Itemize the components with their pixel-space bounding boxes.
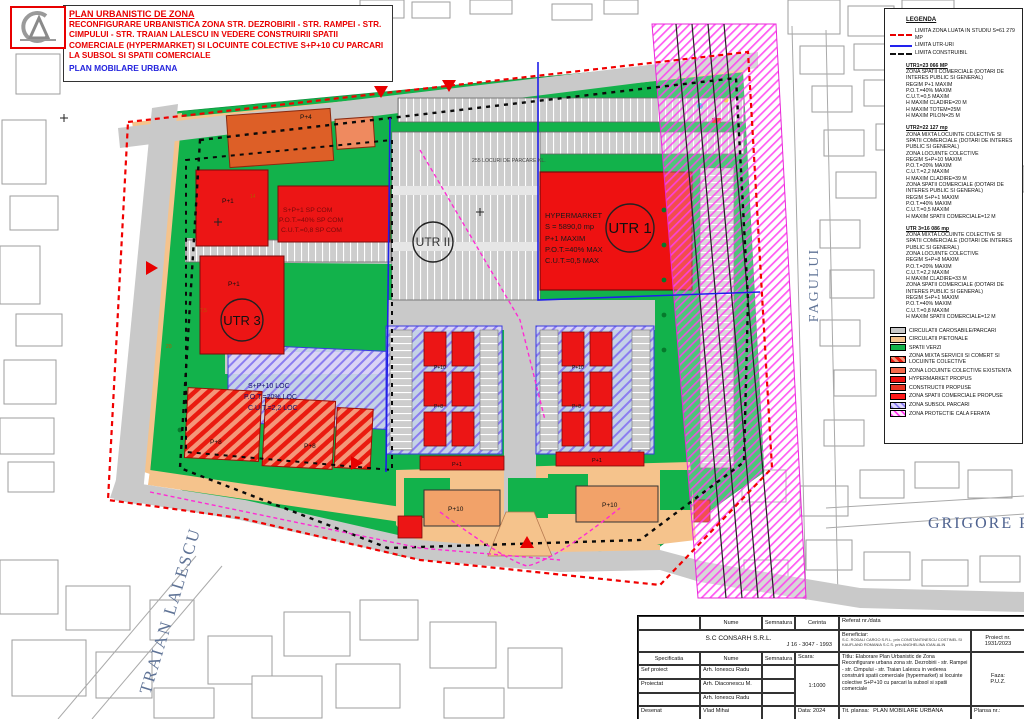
tb-beneficiar-cell: Beneficiar: S.C. RODALI CARGO S.R.L. pri… xyxy=(839,630,971,652)
faza-value: P.U.Z. xyxy=(990,679,1005,685)
tb-role-desenat: Desenat xyxy=(638,706,700,719)
beneficiar-value: S.C. RODALI CARGO S.R.L. prin CONSTANTIN… xyxy=(842,638,968,647)
tb-referat-header: Referat nr./data xyxy=(839,616,1024,630)
tb-blank-cell xyxy=(638,616,700,630)
red-dashed-line-icon xyxy=(890,34,912,36)
utr1-badge-label: UTR 1 xyxy=(608,220,651,237)
svg-text:C.U.T.=0,8 SP COM: C.U.T.=0,8 SP COM xyxy=(281,227,342,234)
svg-text:P+8: P+8 xyxy=(572,404,581,410)
proposed-buildings-swatch xyxy=(890,384,906,391)
proiect-value: 1931/2023 xyxy=(985,641,1011,647)
legend-limit-study: LIMITA ZONA LUATA IN STUDIU S=61 279 MP xyxy=(890,28,1019,41)
legend-utr1-block: UTR1=23 066 MP ZONA SPATII COMERCIALE (D… xyxy=(906,63,1018,120)
tb-plansa-title-cell: Tit. plansa: PLAN MOBILARE URBANA xyxy=(839,706,971,719)
svg-text:P+10: P+10 xyxy=(448,506,464,513)
plan-sheet-name: PLAN MOBILARE URBANA xyxy=(69,63,387,73)
tb-semnatura-header-2: Semnatura xyxy=(762,652,795,665)
railway-protection-swatch xyxy=(890,410,906,417)
building-utr3-a xyxy=(196,170,268,246)
parking-count-label: 255 LOCURI DE PARCARE KL. xyxy=(472,158,546,164)
svg-text:P+10: P+10 xyxy=(602,502,618,509)
legend-color-items: CIRCULATII CAROSABILE/PARCARI CIRCULATII… xyxy=(890,327,1019,417)
tb-sig-2 xyxy=(762,679,795,693)
svg-text:P+4: P+4 xyxy=(300,114,312,121)
tb-plansa-nr-label: Plansa nr.: xyxy=(971,706,1024,719)
plansa-title-value: PLAN MOBILARE URBANA xyxy=(873,708,943,714)
hypermarket-swatch xyxy=(890,376,906,383)
svg-text:S+P+10 LOC: S+P+10 LOC xyxy=(248,383,290,390)
tb-role-sef-proiect: Sef proiect xyxy=(638,665,700,679)
loc-label: S+P+10 LOC P.O.T.=20% LOC C.U.T.=2,2 LOC xyxy=(244,383,298,412)
logo-glyph xyxy=(12,8,64,47)
pedestrian-swatch xyxy=(890,336,906,343)
svg-text:P+10: P+10 xyxy=(434,365,446,371)
legend-utr3-block: UTR 3=16 086 mp ZONA MIXTA LOCUINTE COLE… xyxy=(906,226,1018,320)
svg-text:P+8: P+8 xyxy=(434,404,443,410)
tb-name-desenat: Vlad Mihai xyxy=(700,706,762,719)
svg-text:P+10: P+10 xyxy=(572,365,584,371)
svg-text:HYPERMARKET: HYPERMARKET xyxy=(545,211,603,220)
plan-map: UTR 1 UTR II UTR 3 HYPERMARKET S = 5890,… xyxy=(0,0,1024,719)
street-grigore: GRIGORE P xyxy=(928,515,1024,532)
green-space-swatch xyxy=(890,344,906,351)
svg-text:S+P+1 SP COM: S+P+1 SP COM xyxy=(283,207,333,214)
tb-role-blank xyxy=(638,693,700,706)
roads-swatch xyxy=(890,327,906,334)
company-name: S.C CONSARH S.R.L. xyxy=(706,635,772,642)
tb-sig-4 xyxy=(762,706,795,719)
tb-titlu-cell: Titlu: Elaborare Plan Urbanistic de Zona… xyxy=(839,652,971,706)
company-logo xyxy=(10,6,66,49)
street-fagului: FAGULUI xyxy=(807,248,822,322)
svg-text:C.U.T.=0,5 MAX: C.U.T.=0,5 MAX xyxy=(545,256,599,265)
legend-limit-buildable: LIMITA CONSTRUIBIL xyxy=(890,50,1019,56)
tb-role-proiectat: Proiectat xyxy=(638,679,700,693)
tb-company-cell: S.C CONSARH S.R.L. J 16 - 3047 - 1993 xyxy=(638,630,839,652)
svg-text:C.U.T.=2,2 LOC: C.U.T.=2,2 LOC xyxy=(248,405,298,412)
plansa-title-label: Tit. plansa: xyxy=(842,708,869,714)
tb-proiect-cell: Proiect nr. 1931/2023 xyxy=(971,630,1024,652)
company-registration: J 16 - 3047 - 1993 xyxy=(787,642,838,648)
blue-line-icon xyxy=(890,45,912,47)
proposed-commercial-swatch xyxy=(890,393,906,400)
svg-text:P+1 MAXIM: P+1 MAXIM xyxy=(545,234,585,243)
tb-name-proiectat: Arh. Diaconescu M. xyxy=(700,679,762,693)
tb-sig-1 xyxy=(762,665,795,679)
svg-text:20: 20 xyxy=(166,344,172,350)
svg-text:7,5: 7,5 xyxy=(200,308,207,314)
svg-text:P.O.T.=40% SP COM: P.O.T.=40% SP COM xyxy=(279,217,343,224)
tb-specificatia-header: Specificatia xyxy=(638,652,700,665)
titlu-value: Elaborare Plan Urbanistic de Zona Reconf… xyxy=(842,654,967,692)
utr2-badge-label: UTR II xyxy=(416,235,451,249)
svg-text:P+1: P+1 xyxy=(228,281,240,288)
svg-text:P+8: P+8 xyxy=(210,439,222,446)
tb-name-extra: Arh. Ionescu Radu xyxy=(700,693,762,706)
underground-parking-swatch xyxy=(890,402,906,409)
svg-text:P.O.T.=20% LOC: P.O.T.=20% LOC xyxy=(244,394,297,401)
tb-scara-label: Scara: xyxy=(795,652,839,665)
tb-semnatura-header: Semnatura xyxy=(762,616,795,630)
tb-sig-3 xyxy=(762,693,795,706)
urban-plan-sheet: UTR 1 UTR II UTR 3 HYPERMARKET S = 5890,… xyxy=(0,0,1024,719)
tb-name-sef-proiect: Arh. Ionescu Radu xyxy=(700,665,762,679)
legend-limit-utr: LIMITA UTR-URI xyxy=(890,42,1019,48)
tb-cerinta-header: Cerinta xyxy=(795,616,839,630)
svg-text:P+1: P+1 xyxy=(452,462,462,468)
building-utr3-c xyxy=(200,256,284,354)
tb-nume-header-2: Nume xyxy=(700,652,762,665)
titlu-label: Titlu: xyxy=(842,654,854,660)
legend-title: LEGENDA xyxy=(906,17,1019,23)
plan-title-box: PLAN URBANISTIC DE ZONA RECONFIGURARE UR… xyxy=(63,5,393,82)
svg-text:P.O.T.=40% MAX: P.O.T.=40% MAX xyxy=(545,245,603,254)
title-block: Nume Semnatura Cerinta Referat nr./data … xyxy=(637,615,1024,719)
svg-text:P+8: P+8 xyxy=(304,443,316,450)
svg-text:P+1: P+1 xyxy=(592,458,602,464)
utr3-badge-label: UTR 3 xyxy=(223,313,261,328)
tb-data-label: Data: 2024 xyxy=(795,706,839,719)
plan-title: PLAN URBANISTIC DE ZONA xyxy=(69,9,387,19)
svg-text:P+1: P+1 xyxy=(222,198,234,205)
tb-faza-cell: Faza: P.U.Z. xyxy=(971,652,1024,706)
svg-text:14: 14 xyxy=(250,194,256,200)
svg-text:S = 5890,0 mp: S = 5890,0 mp xyxy=(545,222,594,231)
tb-nume-header: Nume xyxy=(700,616,762,630)
plan-subtitle: RECONFIGURARE URBANISTICA ZONA STR. DEZR… xyxy=(69,20,387,62)
existing-housing-swatch xyxy=(890,367,906,374)
black-dashed-line-icon xyxy=(890,53,912,55)
mixed-zone-swatch xyxy=(890,356,906,363)
legend-utr2-block: UTR2=22 127 mp ZONA MIXTA LOCUINTE COLEC… xyxy=(906,125,1018,219)
legend-panel: LEGENDA LIMITA ZONA LUATA IN STUDIU S=61… xyxy=(884,8,1023,444)
tb-scara-value: 1:1000 xyxy=(795,665,839,706)
